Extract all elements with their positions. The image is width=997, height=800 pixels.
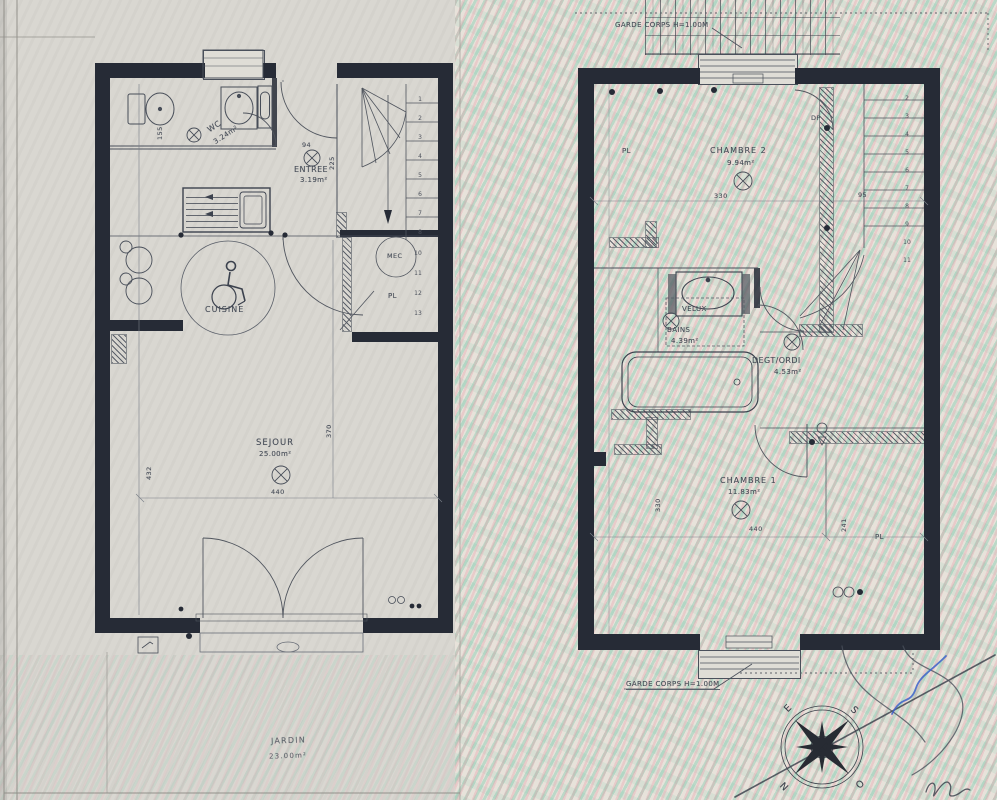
door-dp-label: DP [811, 114, 821, 122]
ground-window-symbols [389, 597, 405, 604]
terrace-step [200, 80, 363, 652]
room-area-degagement: 4.53m² [774, 368, 802, 376]
stair-step-number: 3 [905, 108, 909, 126]
stair-step-number: 11 [414, 264, 422, 284]
mec-label: MEC [387, 252, 402, 260]
outdoor-tap-icon [138, 637, 158, 653]
stair-step-number: 10 [414, 244, 422, 264]
room-label-jardin: JARDIN [271, 735, 306, 745]
room-area-bains: 4.39m² [671, 337, 699, 345]
ground-stair-numbers-lower: 10111213 [410, 244, 426, 324]
dim-ground-depth: 432 [145, 466, 153, 480]
room-area-sejour: 25.00m² [259, 450, 291, 458]
closet-label-right: PL [875, 533, 884, 541]
dim-sejour-depth: 370 [325, 424, 333, 438]
stair-step-number: 4 [905, 126, 909, 144]
dim-stair-width: 95 [858, 191, 867, 199]
stair-step-number: 10 [903, 234, 911, 252]
room-area-chambre1: 11.83m² [728, 488, 760, 496]
kitchen-counter [183, 188, 270, 232]
garde-corps-leaders [624, 28, 752, 689]
stair-winder-line [843, 250, 860, 330]
stair-step-number: 3 [418, 128, 422, 147]
stair-winder-arc [800, 255, 864, 318]
stair-winder-line [362, 88, 390, 154]
dim-entry-width: 94 [302, 141, 311, 149]
room-area-entree: 3.19m² [300, 176, 328, 184]
ground-dimension-lines [136, 84, 442, 615]
stair-step-number: 9 [905, 216, 909, 234]
room-label-entree: ENTREE [294, 165, 328, 174]
bath-washbasin-icon [668, 272, 750, 316]
laundry-appliances [120, 241, 152, 304]
stair-step-number: 5 [418, 166, 422, 185]
room-area-chambre2: 9.94m² [727, 159, 755, 167]
velux-label: VELUX [682, 305, 707, 313]
stair-step-number: 8 [418, 223, 422, 242]
dim-entry-depth: 225 [328, 156, 336, 170]
blue-pen-stroke [892, 656, 946, 714]
wheelchair-turning-circle [181, 241, 275, 335]
garde-corps-bottom-label: GARDE CORPS H=1.00M [626, 680, 720, 690]
stair-step-number: 8 [905, 198, 909, 216]
room-label-cuisine: CUISINE [205, 305, 244, 314]
dim-wc-width: 155 [156, 126, 164, 140]
dim-closet-depth: 241 [840, 518, 848, 532]
toilet-icon [128, 93, 174, 125]
stair-step-number: 12 [414, 284, 422, 304]
room-label-chambre2: CHAMBRE 2 [710, 146, 767, 155]
stair-step-number: 7 [905, 180, 909, 198]
room-label-chambre1: CHAMBRE 1 [720, 476, 777, 485]
stair-step-number: 7 [418, 204, 422, 223]
chambre1-symbols [809, 423, 863, 597]
room-label-degagement: DEGT/ORDI [752, 356, 801, 365]
dim-chambre1-depth: 330 [654, 498, 662, 512]
stair-step-number: 11 [903, 252, 911, 270]
first-stair-numbers: 234567891011 [899, 90, 915, 270]
stair-step-number: 6 [418, 185, 422, 204]
first-electrical-dots [609, 87, 830, 231]
floor-plan-scan: WC 3.24m² 155 ENTREE 3.19m² 94 225 CUISI… [0, 0, 997, 800]
ground-electrical-dots [178, 230, 421, 639]
closet-label-ground: PL [388, 292, 397, 300]
stair-step-number: 4 [418, 147, 422, 166]
room-area-jardin: 23.00m² [269, 751, 307, 760]
stair-step-number: 6 [905, 162, 909, 180]
dim-ground-width: 440 [271, 488, 285, 496]
french-doors [196, 538, 367, 621]
room-label-bains: BAINS [667, 326, 690, 334]
closet-label-top: PL [622, 147, 631, 155]
plan-linework [0, 0, 997, 800]
stair-step-number: 2 [905, 90, 909, 108]
stair-step-number: 13 [414, 304, 422, 324]
garde-corps-top-label: GARDE CORPS H=1.00M [615, 21, 709, 29]
stair-winder-line [362, 88, 376, 163]
stair-step-number: 5 [905, 144, 909, 162]
stair-step-number: 1 [418, 90, 422, 109]
bathtub-icon [622, 352, 758, 412]
wheelchair-icon [212, 262, 245, 310]
dim-chambre2-width: 330 [714, 192, 728, 200]
dim-chambre1-width: 440 [749, 525, 763, 533]
stair-winder-line [362, 88, 406, 112]
room-label-sejour: SEJOUR [256, 438, 294, 448]
ground-stair-numbers-upper: 12345678 [412, 90, 428, 242]
stair-winder-line [362, 88, 400, 138]
washbasin-icon [221, 87, 257, 129]
stair-step-number: 2 [418, 109, 422, 128]
